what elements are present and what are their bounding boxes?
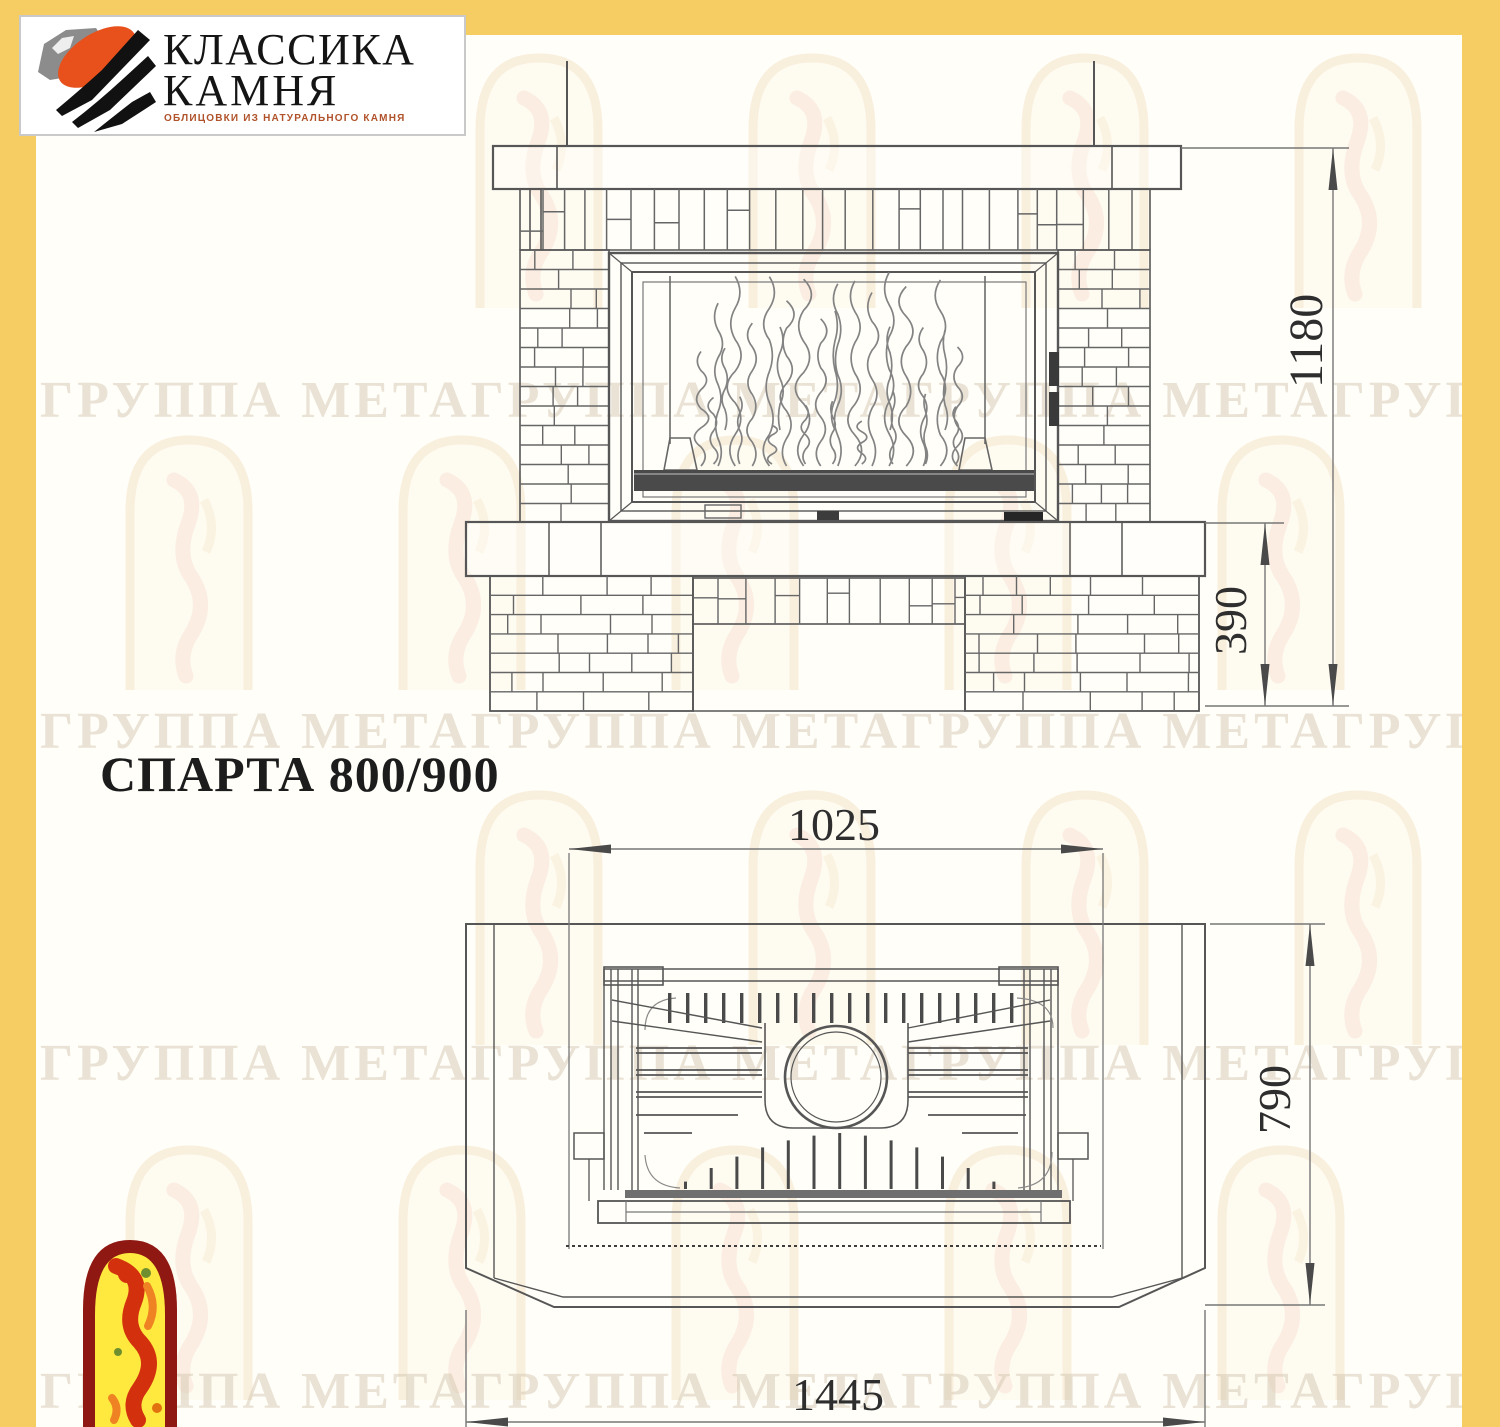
svg-text:ОБЛИЦОВКИ ИЗ НАТУРАЛЬНОГО КАМН: ОБЛИЦОВКИ ИЗ НАТУРАЛЬНОГО КАМНЯ [164, 113, 406, 124]
svg-text:1180: 1180 [1280, 294, 1333, 388]
svg-text:СПАРТА 800/900: СПАРТА 800/900 [100, 746, 500, 802]
svg-text:390: 390 [1205, 586, 1256, 655]
svg-text:1445: 1445 [792, 1369, 884, 1420]
svg-text:1025: 1025 [788, 799, 880, 850]
svg-text:790: 790 [1249, 1065, 1300, 1134]
svg-text:КАМНЯ: КАМНЯ [163, 66, 339, 115]
svg-text:ГРУППА МЕТАГРУППА МЕТАГРУППА М: ГРУППА МЕТАГРУППА МЕТАГРУППА МЕТАГРУППА … [40, 1363, 1500, 1420]
